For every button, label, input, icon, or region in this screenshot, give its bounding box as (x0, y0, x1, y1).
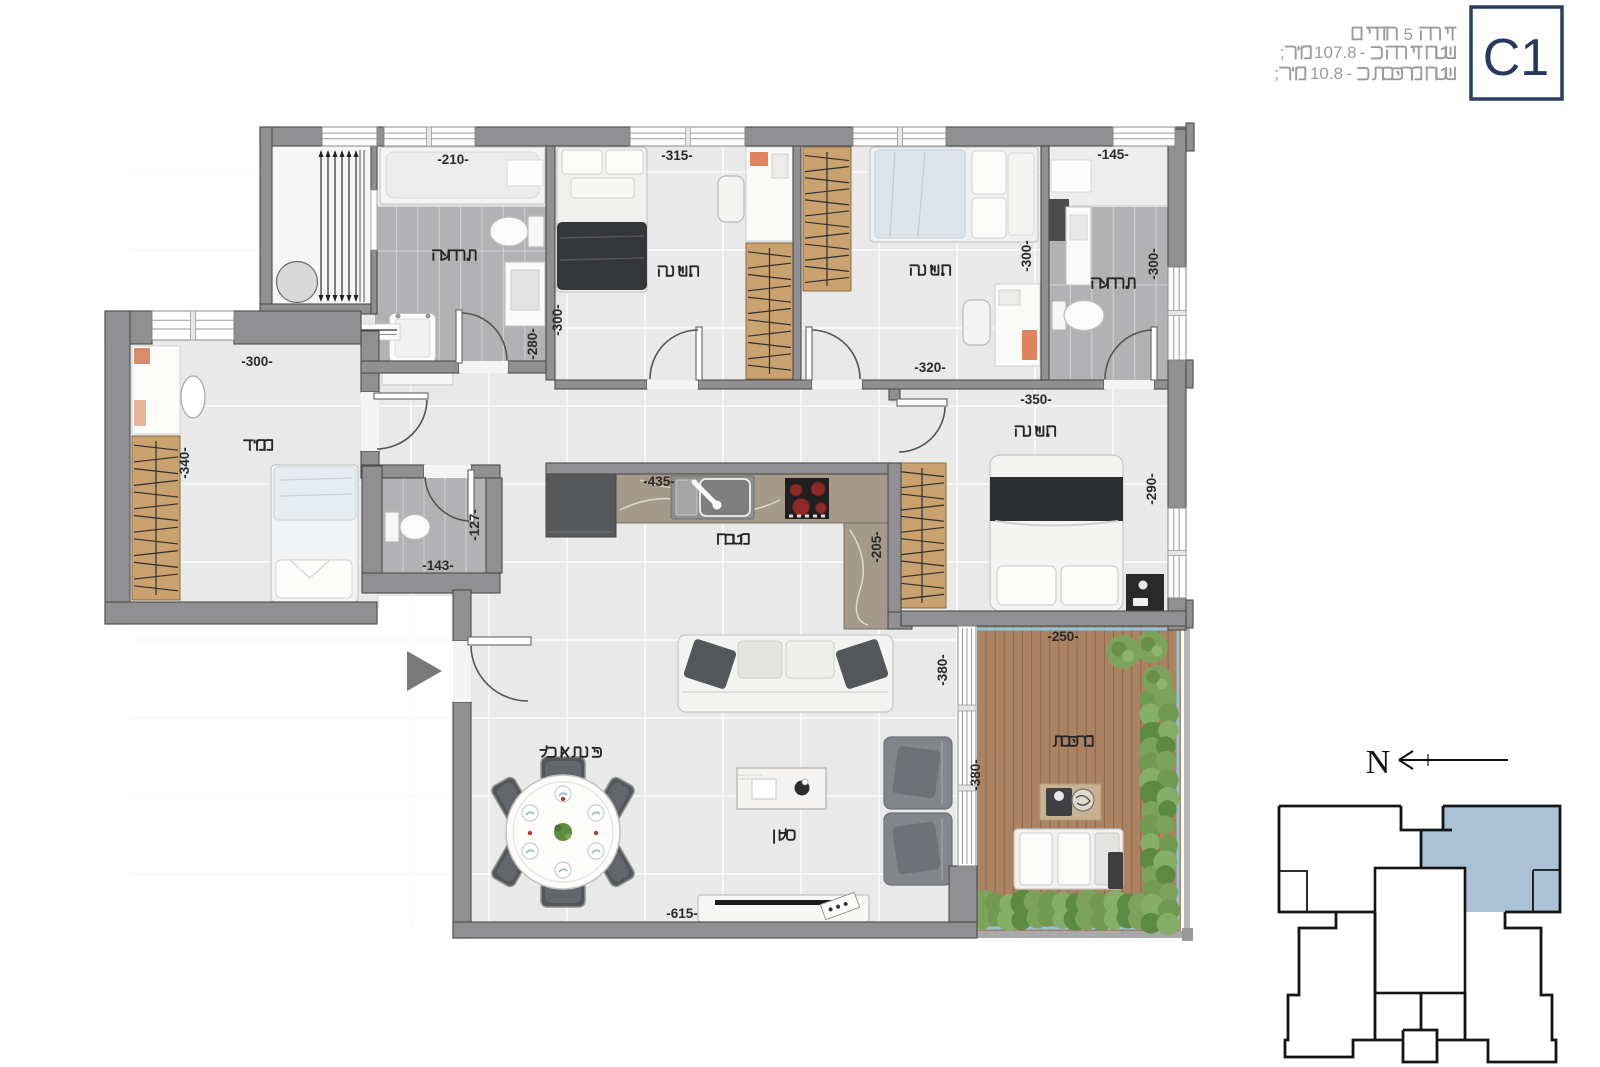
svg-text:-350-: -350- (1020, 392, 1052, 407)
svg-text:-380-: -380- (935, 654, 950, 686)
svg-text:107.8: 107.8 (1314, 43, 1357, 62)
svg-text:;: ; (1280, 43, 1285, 62)
svg-text:-127-: -127- (467, 509, 482, 541)
svg-text:-300-: -300- (1146, 248, 1161, 280)
svg-text:-380-: -380- (968, 759, 983, 791)
svg-text:-300-: -300- (550, 304, 565, 336)
svg-text:-300-: -300- (241, 354, 273, 369)
svg-text:-143-: -143- (422, 558, 454, 573)
svg-text:N: N (1366, 744, 1391, 781)
svg-text:-145-: -145- (1097, 147, 1129, 162)
svg-text:10.8: 10.8 (1310, 64, 1343, 83)
svg-text:-315-: -315- (661, 148, 693, 163)
svg-text:-340-: -340- (177, 447, 192, 479)
svg-text:-300-: -300- (1019, 240, 1034, 272)
svg-text:-435-: -435- (643, 474, 675, 489)
svg-text:C1: C1 (1483, 29, 1549, 87)
svg-text:-250-: -250- (1047, 629, 1079, 644)
svg-text:-210-: -210- (437, 152, 469, 167)
svg-text:5: 5 (1404, 25, 1413, 44)
svg-text:-615-: -615- (666, 906, 698, 921)
svg-text:-: - (1360, 43, 1366, 62)
svg-text:-320-: -320- (914, 360, 946, 375)
svg-text:-205-: -205- (869, 531, 884, 563)
svg-text:-: - (1346, 64, 1352, 83)
svg-text:;: ; (1274, 64, 1279, 83)
svg-text:-290-: -290- (1144, 473, 1159, 505)
svg-text:-280-: -280- (525, 328, 540, 360)
